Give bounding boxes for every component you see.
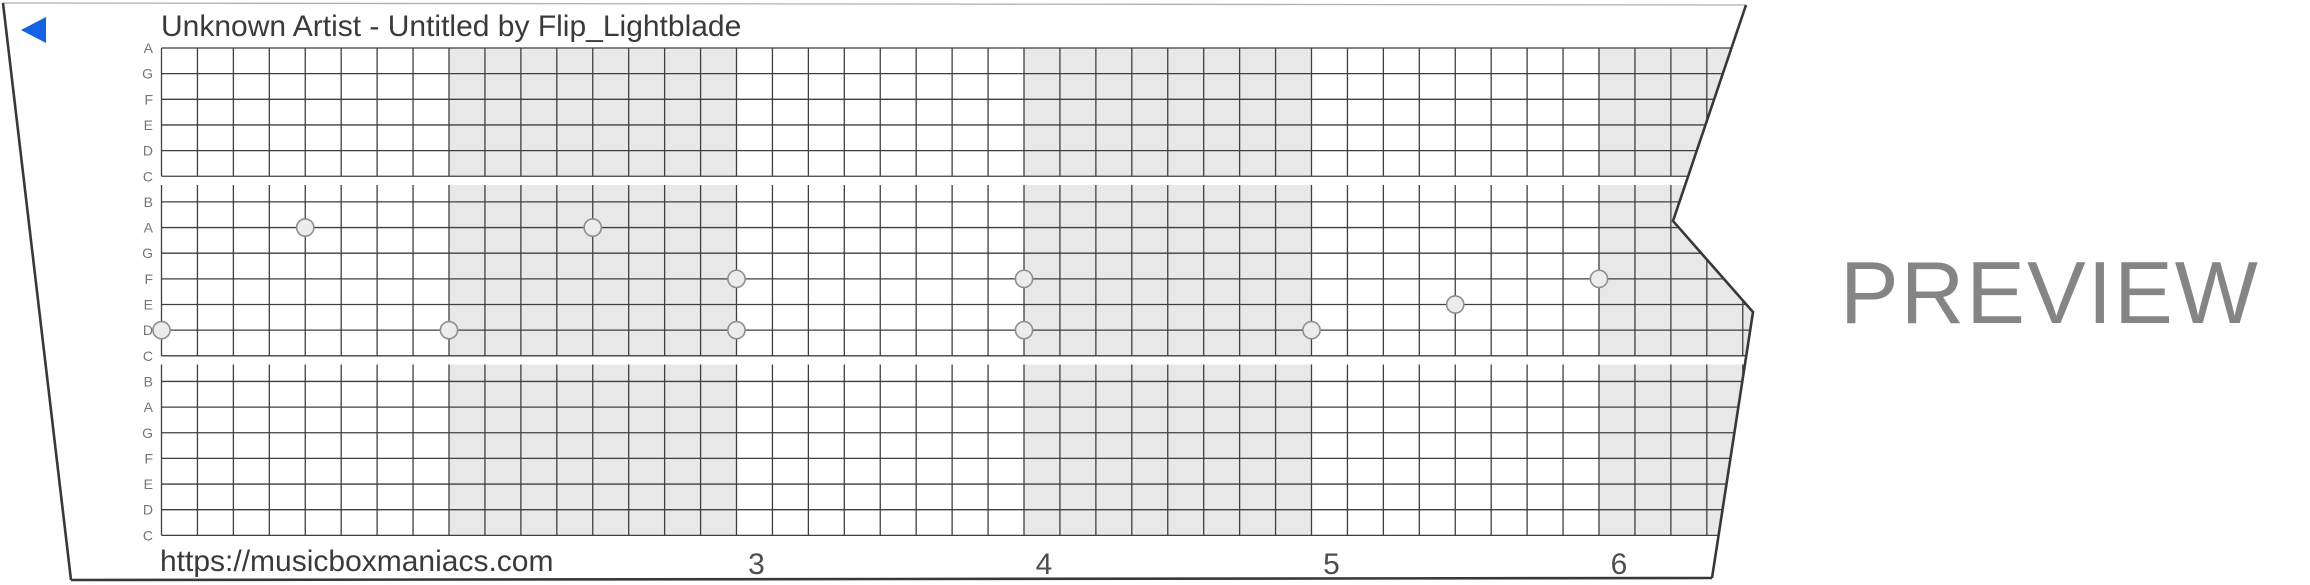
note-label: C	[143, 527, 153, 543]
note-dot[interactable]	[584, 219, 601, 236]
note-label: C	[143, 168, 153, 184]
note-label: D	[143, 322, 153, 338]
strip-grid	[153, 48, 1887, 535]
note-label: A	[144, 40, 154, 56]
measure-number: 5	[1323, 548, 1340, 581]
note-dot[interactable]	[1015, 270, 1032, 287]
note-label: E	[144, 117, 153, 133]
shaded-measure-band	[1599, 48, 1887, 176]
play-button[interactable]	[21, 17, 46, 43]
strip-title: Unknown Artist - Untitled by Flip_Lightb…	[161, 8, 741, 46]
note-dot[interactable]	[440, 322, 457, 339]
note-label: E	[144, 476, 153, 492]
note-label: G	[142, 245, 153, 261]
note-label: D	[143, 143, 153, 159]
note-label: F	[144, 450, 153, 466]
note-label: D	[143, 502, 153, 518]
note-label: A	[144, 220, 154, 236]
measure-number: 6	[1611, 548, 1628, 581]
note-dot[interactable]	[1447, 296, 1464, 313]
note-label: B	[144, 194, 153, 210]
measure-number: 4	[1036, 548, 1053, 581]
preview-page: AGFEDCBAGFEDCBAGFEDC3456 Unknown Artist …	[0, 0, 2310, 585]
note-dot[interactable]	[728, 270, 745, 287]
note-label: G	[142, 425, 153, 441]
note-label: A	[144, 399, 154, 415]
note-dot[interactable]	[1303, 322, 1320, 339]
note-dot[interactable]	[728, 322, 745, 339]
note-label: F	[144, 91, 153, 107]
note-label: F	[144, 271, 153, 287]
note-dot[interactable]	[153, 322, 170, 339]
note-dot[interactable]	[297, 219, 314, 236]
strip-left-edge	[3, 3, 71, 580]
strip-top-edge	[3, 3, 1746, 5]
note-label: G	[142, 66, 153, 82]
preview-watermark: PREVIEW	[1840, 248, 2260, 338]
note-label: B	[144, 373, 153, 389]
note-dot[interactable]	[1590, 270, 1607, 287]
strip-footer-url: https://musicboxmaniacs.com	[160, 544, 553, 580]
note-label: C	[143, 348, 153, 364]
note-dot[interactable]	[1015, 322, 1032, 339]
measure-number: 3	[748, 548, 765, 581]
note-label: E	[144, 297, 153, 313]
